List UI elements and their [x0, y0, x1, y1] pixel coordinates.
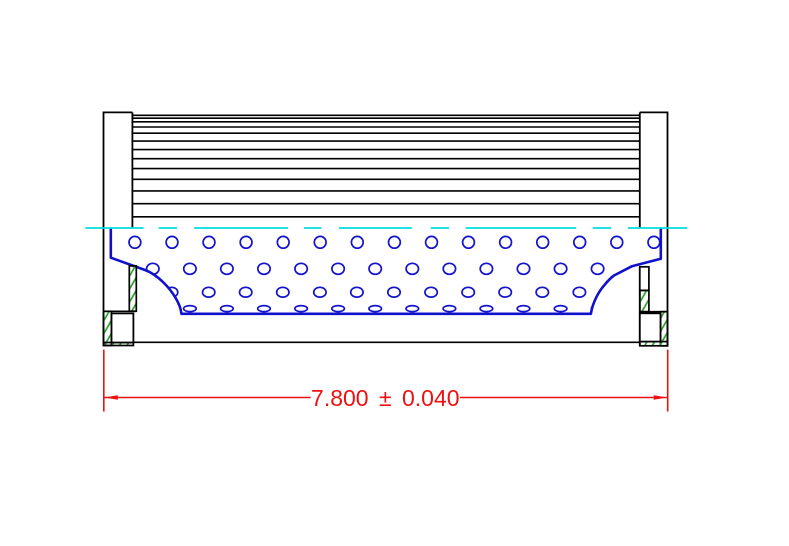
svg-text:7.800 ± 0.040: 7.800 ± 0.040	[311, 385, 460, 411]
